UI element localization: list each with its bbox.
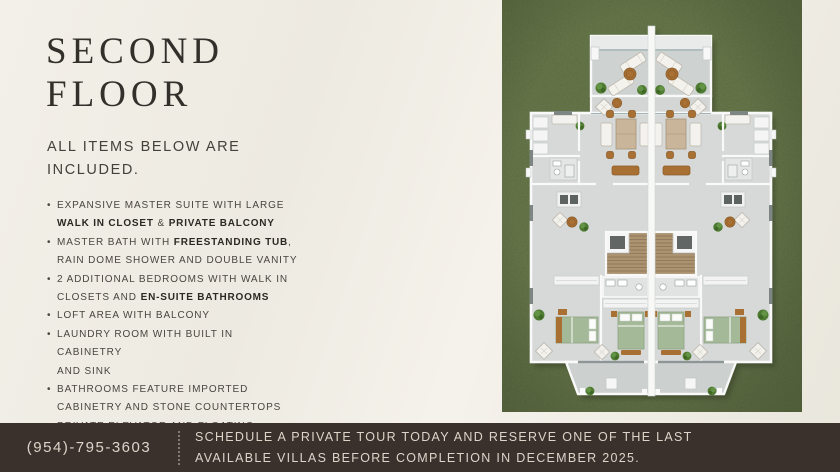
flyer: SECOND FLOOR ALL ITEMS BELOW ARE INCLUDE… <box>0 0 840 472</box>
center-party-wall <box>648 26 655 396</box>
page-title: SECOND FLOOR <box>46 30 346 116</box>
bullet-dot: • <box>47 197 51 215</box>
feature-item: •2 ADDITIONAL BEDROOMS WITH WALK IN CLOS… <box>47 271 299 308</box>
info-panel: SECOND FLOOR ALL ITEMS BELOW ARE INCLUDE… <box>46 30 346 455</box>
floor-plan-svg <box>502 0 802 412</box>
feature-item: •EXPANSIVE MASTER SUITE WITH LARGE WALK … <box>47 197 299 234</box>
bullet-dot: • <box>47 234 51 252</box>
subtitle: ALL ITEMS BELOW ARE INCLUDED. <box>47 136 346 182</box>
feature-item: •BATHROOMS FEATURE IMPORTED CABINETRY AN… <box>47 381 299 418</box>
bullet-dot: • <box>47 326 51 344</box>
floor-plan-image <box>502 0 802 412</box>
bullet-dot: • <box>47 271 51 289</box>
feature-item: •LAUNDRY ROOM WITH BUILT IN CABINETRY AN… <box>47 326 299 381</box>
feature-item: •MASTER BATH WITH FREESTANDING TUB, RAIN… <box>47 234 299 271</box>
feature-item: •LOFT AREA WITH BALCONY <box>47 307 299 325</box>
cta-text: SCHEDULE A PRIVATE TOUR TODAY AND RESERV… <box>195 427 693 469</box>
bullet-dot: • <box>47 307 51 325</box>
features-list: •EXPANSIVE MASTER SUITE WITH LARGE WALK … <box>47 197 299 455</box>
footer-banner: (954)-795-3603 SCHEDULE A PRIVATE TOUR T… <box>0 423 840 472</box>
bullet-dot: • <box>47 381 51 399</box>
phone-number: (954)-795-3603 <box>0 439 178 456</box>
footer-divider <box>178 431 180 465</box>
